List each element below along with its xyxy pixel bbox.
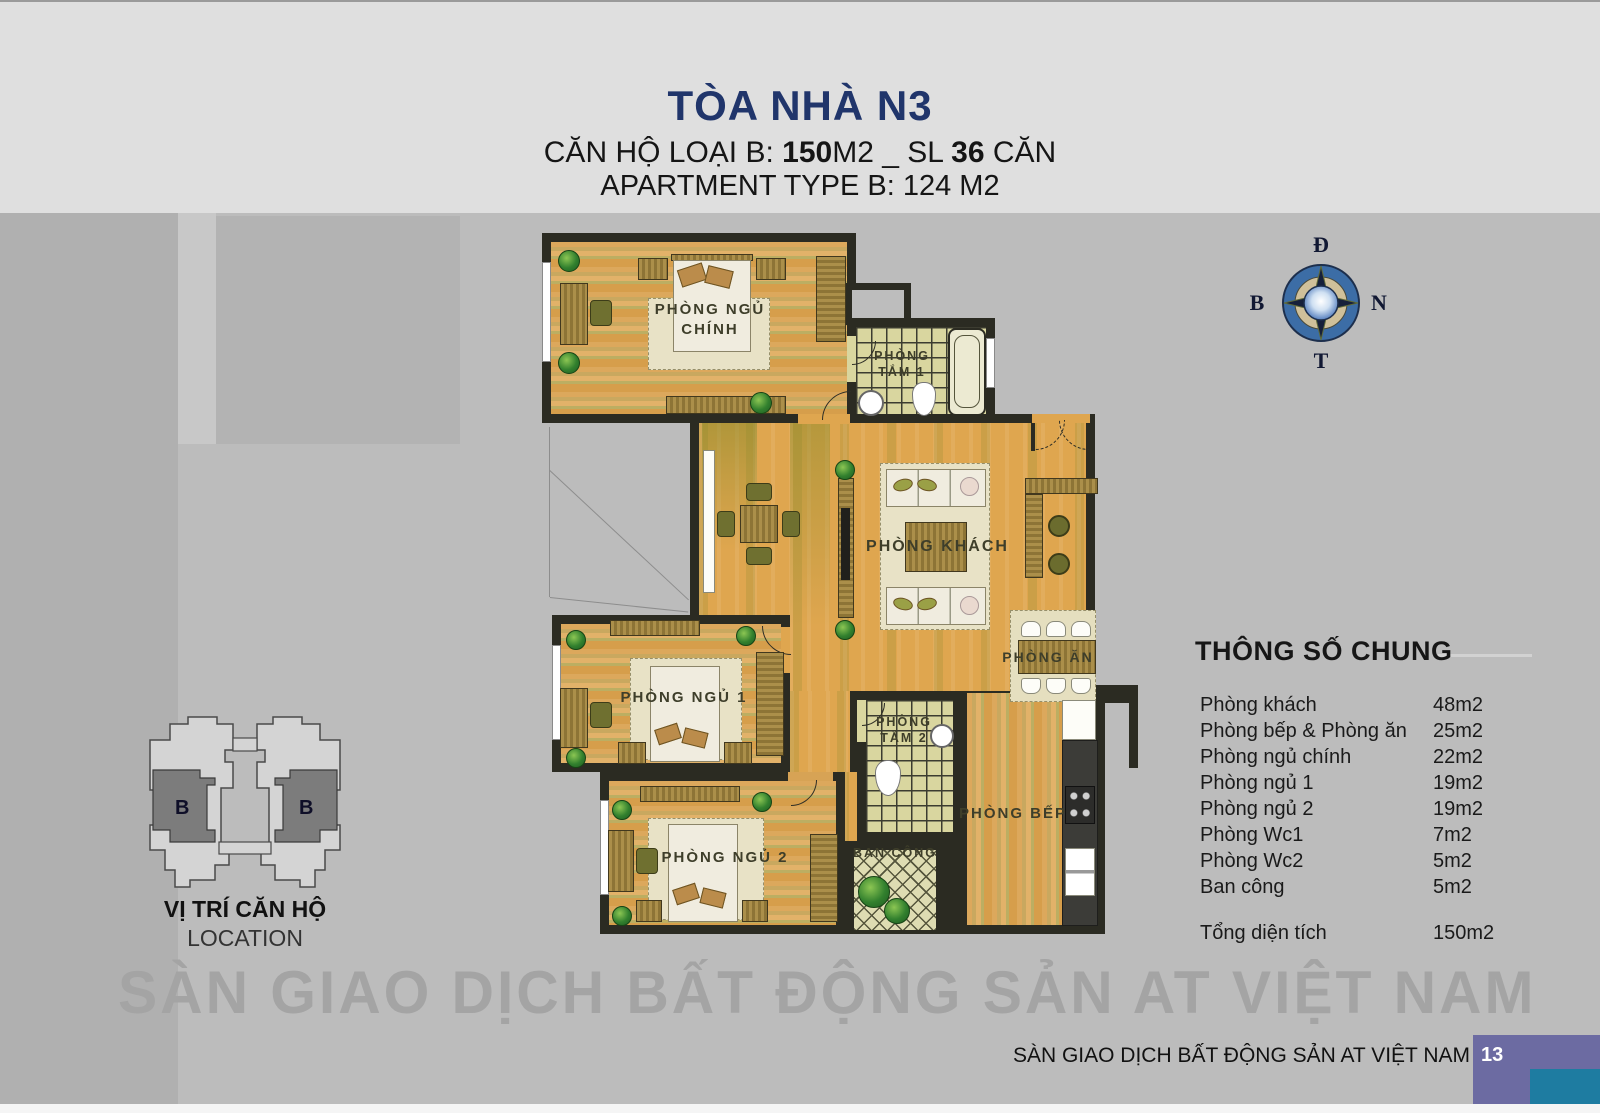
room-label-kitchen: PHÒNG BẾP <box>952 804 1074 824</box>
spec-rows: Phòng khách48m2 Phòng bếp & Phòng ăn25m2… <box>1200 694 1523 902</box>
spec-row: Phòng Wc17m2 <box>1200 824 1523 850</box>
room-label-living: PHÒNG KHÁCH <box>855 537 1020 558</box>
room-label-master: PHÒNG NGỦ CHÍNH <box>626 300 794 339</box>
spec-label: Phòng ngủ chính <box>1200 746 1433 772</box>
room-label-bed1: PHÒNG NGỦ 1 <box>606 688 762 708</box>
spec-label: Phòng Wc1 <box>1200 824 1433 850</box>
room-label-bath2: PHÒNG TẮM 2 <box>843 714 965 747</box>
spec-row: Phòng ngủ chính22m2 <box>1200 746 1523 772</box>
spec-row: Ban công5m2 <box>1200 876 1523 902</box>
spec-value: 5m2 <box>1433 876 1523 902</box>
spec-label: Phòng ngủ 1 <box>1200 772 1433 798</box>
spec-table: THÔNG SỐ CHUNG Phòng khách48m2 Phòng bếp… <box>0 0 1600 1113</box>
spec-value: 5m2 <box>1433 850 1523 876</box>
room-label-balcony: BAN CÔNG <box>843 845 947 861</box>
watermark: SÀN GIAO DỊCH BẤT ĐỘNG SẢN AT VIỆT NAM <box>118 958 1553 1027</box>
spec-row: Phòng bếp & Phòng ăn25m2 <box>1200 720 1523 746</box>
bottom-strip <box>0 1104 1600 1113</box>
spec-value: 7m2 <box>1433 824 1523 850</box>
spec-row: Phòng ngủ 119m2 <box>1200 772 1523 798</box>
spec-row: Phòng ngủ 219m2 <box>1200 798 1523 824</box>
spec-row: Phòng Wc25m2 <box>1200 850 1523 876</box>
spec-value: 19m2 <box>1433 772 1523 798</box>
spec-total-row: Tổng diện tích 150m2 <box>1200 922 1523 948</box>
spec-row: Phòng khách48m2 <box>1200 694 1523 720</box>
spec-label: Phòng bếp & Phòng ăn <box>1200 720 1433 746</box>
spec-total-value: 150m2 <box>1433 922 1523 948</box>
spec-label: Phòng ngủ 2 <box>1200 798 1433 824</box>
spec-value: 25m2 <box>1433 720 1523 746</box>
spec-value: 22m2 <box>1433 746 1523 772</box>
page-number: 13 <box>1481 1044 1503 1067</box>
spec-title: THÔNG SỐ CHUNG <box>1195 636 1453 667</box>
spec-total-label: Tổng diện tích <box>1200 922 1433 948</box>
footer-teal-box <box>1530 1069 1600 1104</box>
spec-label: Phòng khách <box>1200 694 1433 720</box>
footer-text: SÀN GIAO DỊCH BẤT ĐỘNG SẢN AT VIỆT NAM <box>1013 1044 1470 1068</box>
spec-label: Ban công <box>1200 876 1433 902</box>
spec-value: 48m2 <box>1433 694 1523 720</box>
room-label-dining: PHÒNG ĂN <box>1000 648 1096 666</box>
spec-label: Phòng Wc2 <box>1200 850 1433 876</box>
room-label-bath1: PHÒNG TẮM 1 <box>846 348 958 381</box>
room-label-bed2: PHÒNG NGỦ 2 <box>645 848 805 868</box>
spec-value: 19m2 <box>1433 798 1523 824</box>
